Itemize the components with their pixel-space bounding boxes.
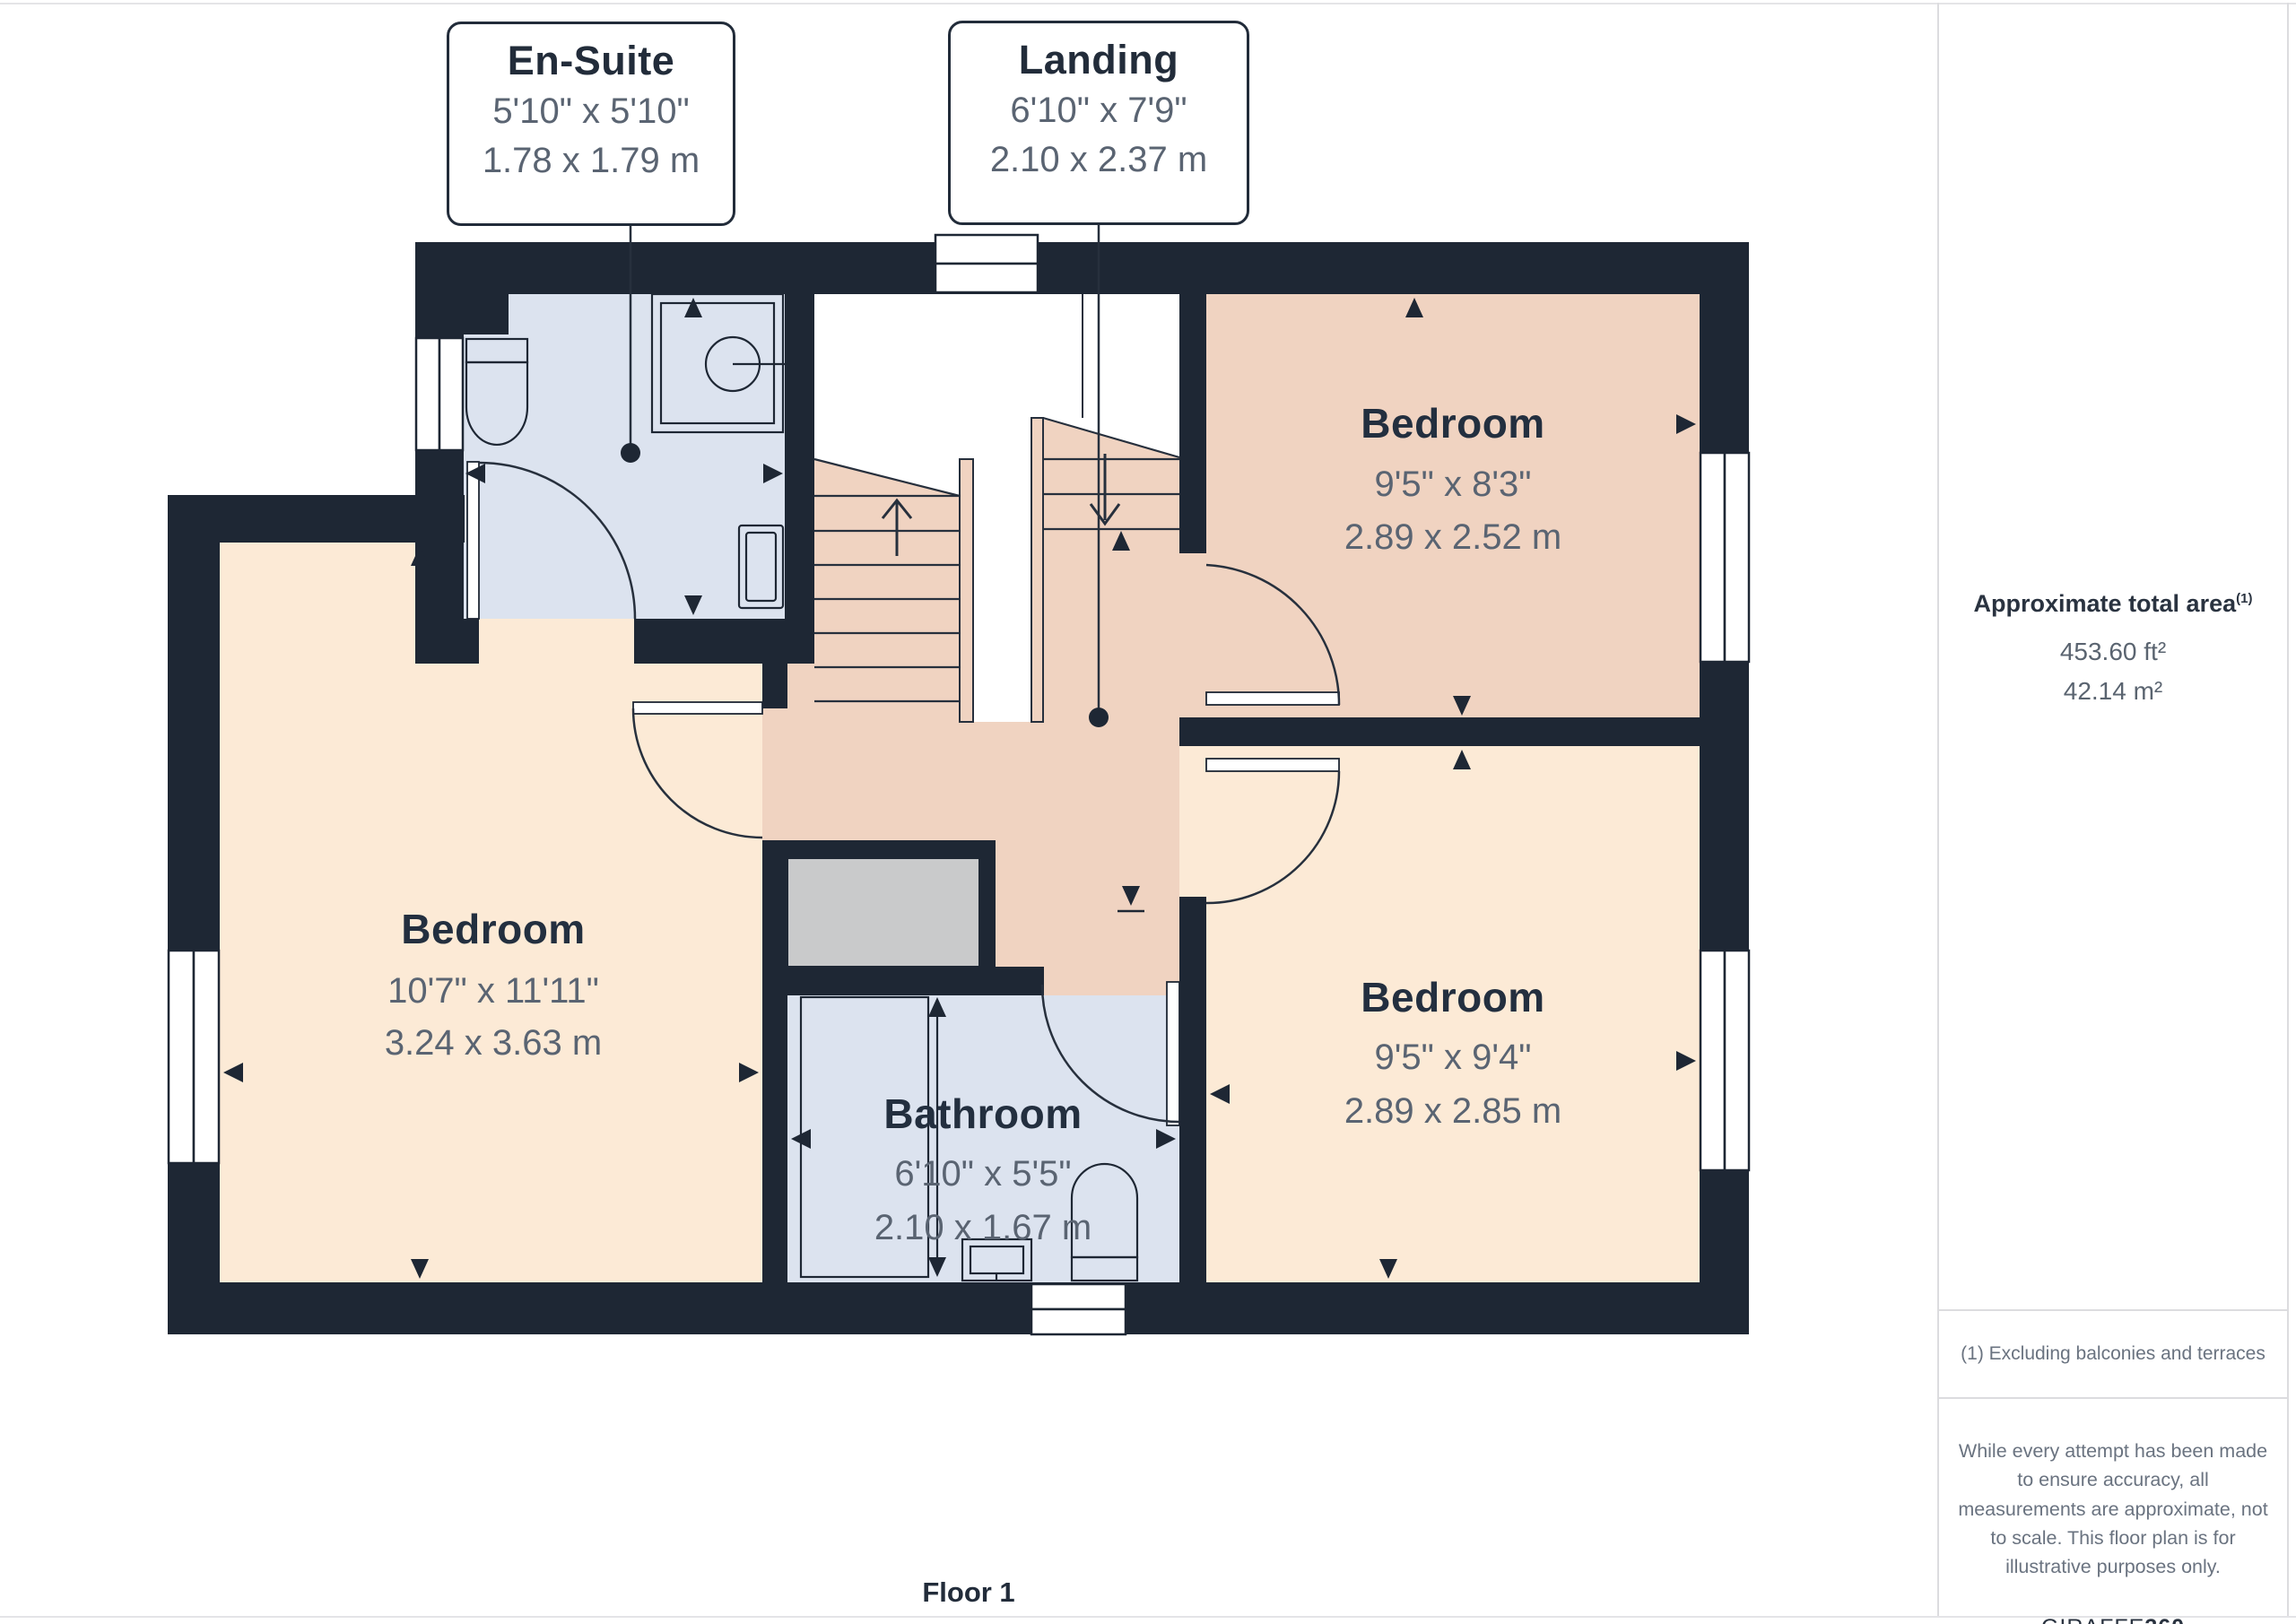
floorplan-page: Bedroom 9'5" x 8'3" 2.89 x 2.52 m Bedroo…	[0, 0, 2296, 1624]
wall-segment	[415, 242, 1749, 294]
room-dim-imperial: 6'10" x 5'5"	[894, 1154, 1071, 1194]
door-leaf	[467, 462, 479, 619]
bedroom-bottom-right-doorway	[1179, 746, 1206, 897]
giraffe360-logo: GIRAFFE360	[1939, 1615, 2287, 1624]
wall-segment	[168, 495, 220, 1334]
wall-segment	[762, 840, 787, 1282]
bedroom-top-right-doorway	[1179, 553, 1206, 717]
wall-segment	[762, 664, 787, 708]
floor-label: Floor 1	[0, 1576, 1937, 1609]
wall-segment	[168, 1282, 1749, 1334]
room-dim-metric: 2.89 x 2.85 m	[1344, 1091, 1561, 1131]
total-area-m: 42.14 m²	[1939, 677, 2287, 706]
door-leaf	[633, 702, 762, 714]
brand-bold: 360	[2144, 1615, 2185, 1624]
callout-dim-metric: 2.10 x 2.37 m	[951, 138, 1247, 181]
room-dim-metric: 3.24 x 3.63 m	[385, 1023, 602, 1063]
room-name: Bathroom	[883, 1090, 1082, 1137]
leader-dot	[1089, 708, 1109, 727]
room-dim-metric: 2.89 x 2.52 m	[1344, 517, 1561, 557]
wall-segment	[762, 967, 1044, 995]
callout-title: Landing	[951, 38, 1247, 83]
callout-dim-imperial: 6'10" x 7'9"	[951, 89, 1247, 132]
room-name: Bedroom	[401, 906, 585, 952]
total-area-ft: 453.60 ft²	[1939, 638, 2287, 666]
wall-segment	[415, 619, 479, 664]
callout-title: En-Suite	[449, 39, 733, 83]
room-dim-imperial: 10'7" x 11'11"	[387, 971, 599, 1011]
door-leaf	[1167, 982, 1179, 1125]
disclaimer-block: While every attempt has been made to ens…	[1939, 1401, 2287, 1624]
window	[1031, 1309, 1126, 1334]
wall-segment	[1179, 717, 1749, 746]
wall-segment	[1179, 897, 1206, 1282]
window	[1031, 1284, 1126, 1309]
window	[1725, 951, 1749, 1170]
total-area-title: Approximate total area(1)	[1939, 590, 2287, 618]
total-area-superscript: (1)	[2236, 591, 2252, 606]
window	[416, 338, 439, 450]
room-name: Bedroom	[1361, 400, 1544, 447]
info-sidebar: Approximate total area(1) 453.60 ft² 42.…	[1937, 3, 2289, 1616]
storage-cupboard	[787, 858, 979, 967]
window	[194, 951, 219, 1163]
ensuite-doorway	[479, 619, 634, 664]
wall-pier	[464, 294, 509, 334]
window	[935, 264, 1038, 292]
window	[1700, 951, 1725, 1170]
stairwell-void	[814, 420, 1043, 459]
room-dim-metric: 2.10 x 1.67 m	[874, 1208, 1091, 1247]
callout-dim-metric: 1.78 x 1.79 m	[449, 139, 733, 182]
window	[1700, 453, 1725, 662]
room-dim-imperial: 9'5" x 8'3"	[1375, 465, 1532, 504]
window	[439, 338, 463, 450]
stair-stringer	[1031, 418, 1043, 722]
callout-dim-imperial: 5'10" x 5'10"	[449, 90, 733, 133]
stairwell-void	[814, 294, 1179, 420]
brand-regular: GIRAFFE	[2041, 1615, 2144, 1624]
footnote-block: (1) Excluding balconies and terraces	[1939, 1309, 2287, 1399]
door-leaf	[1206, 692, 1339, 705]
wall-segment	[785, 242, 814, 664]
wall-segment	[1179, 242, 1206, 553]
room-dim-imperial: 9'5" x 9'4"	[1375, 1038, 1532, 1077]
door-leaf	[1206, 759, 1339, 771]
bathroom-doorway	[1044, 967, 1179, 995]
disclaimer-text: While every attempt has been made to ens…	[1952, 1437, 2274, 1581]
stair-stringer	[960, 459, 973, 722]
callout-landing: Landing 6'10" x 7'9" 2.10 x 2.37 m	[948, 21, 1249, 225]
footnote-text: (1) Excluding balconies and terraces	[1961, 1343, 2266, 1365]
bedroom-top-right-floor	[1206, 294, 1700, 717]
callout-ensuite: En-Suite 5'10" x 5'10" 1.78 x 1.79 m	[447, 22, 735, 226]
wall-segment	[762, 840, 996, 858]
total-area-block: Approximate total area(1) 453.60 ft² 42.…	[1939, 590, 2287, 706]
window	[1725, 453, 1749, 662]
stairwell-void	[973, 459, 1031, 722]
leader-dot	[621, 443, 640, 463]
room-name: Bedroom	[1361, 974, 1544, 1020]
window	[935, 235, 1038, 264]
total-area-title-text: Approximate total area	[1974, 590, 2237, 617]
bedroom-left-doorway	[762, 708, 787, 840]
window	[169, 951, 194, 1163]
